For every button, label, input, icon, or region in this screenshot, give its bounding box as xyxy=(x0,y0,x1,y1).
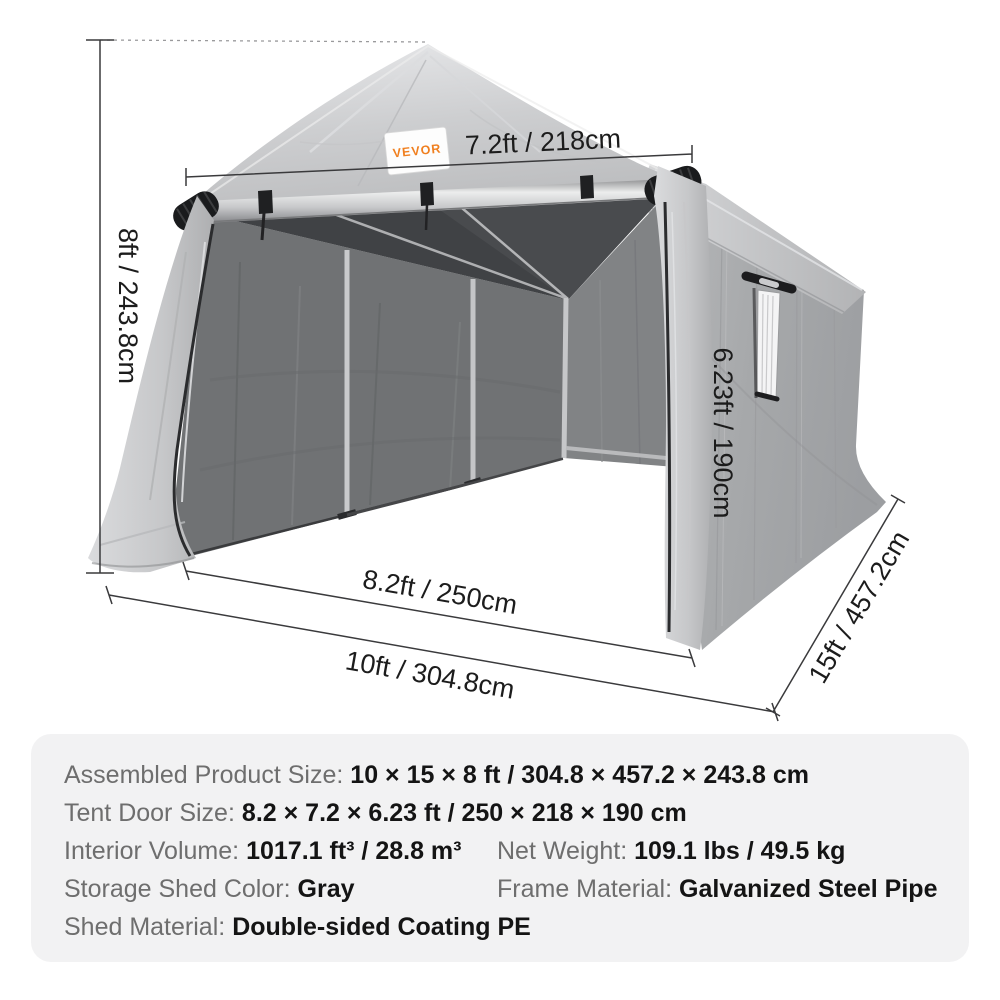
spec-value: 109.1 lbs / 49.5 kg xyxy=(634,837,845,866)
spec-label: Interior Volume: xyxy=(64,837,239,866)
pole-strap xyxy=(580,175,594,199)
spec-label: Frame Material: xyxy=(497,875,672,904)
spec-value: Double-sided Coating PE xyxy=(232,913,531,942)
spec-value: 10 × 15 × 8 ft / 304.8 × 457.2 × 243.8 c… xyxy=(350,761,809,790)
spec-row-volume-weight: Interior Volume: 1017.1 ft³ / 28.8 m³ Ne… xyxy=(64,832,969,870)
product-dimension-image: VEVOR xyxy=(0,0,1000,1000)
spec-value: Gray xyxy=(298,875,355,904)
spec-label: Storage Shed Color: xyxy=(64,875,291,904)
pole-strap xyxy=(258,190,273,214)
spec-panel: Assembled Product Size: 10 × 15 × 8 ft /… xyxy=(31,734,969,962)
corner-pole xyxy=(564,298,566,458)
spec-pair-net-weight: Net Weight: 109.1 lbs / 49.5 kg xyxy=(497,837,845,866)
spec-value: 1017.1 ft³ / 28.8 m³ xyxy=(246,837,461,866)
dim-label-door-height: 6.23ft / 190cm xyxy=(708,347,738,518)
spec-pair-shed-color: Storage Shed Color: Gray xyxy=(64,875,497,904)
spec-value: Galvanized Steel Pipe xyxy=(679,875,937,904)
apex-guide-line xyxy=(100,40,428,42)
spec-label: Net Weight: xyxy=(497,837,627,866)
spec-label: Tent Door Size: xyxy=(64,799,235,828)
spec-label: Assembled Product Size: xyxy=(64,761,343,790)
spec-pair-frame-material: Frame Material: Galvanized Steel Pipe xyxy=(497,875,937,904)
spec-pair-interior-volume: Interior Volume: 1017.1 ft³ / 28.8 m³ xyxy=(64,837,497,866)
spec-row-assembled-size: Assembled Product Size: 10 × 15 × 8 ft /… xyxy=(64,756,969,794)
spec-row-door-size: Tent Door Size: 8.2 × 7.2 × 6.23 ft / 25… xyxy=(64,794,969,832)
spec-row-color-frame: Storage Shed Color: Gray Frame Material:… xyxy=(64,870,969,908)
dim-label-height: 8ft / 243.8cm xyxy=(113,228,143,384)
tent-illustration: VEVOR xyxy=(0,0,1000,737)
dim-door-height: 6.23ft / 190cm xyxy=(708,347,738,518)
spec-row-shed-material: Shed Material: Double-sided Coating PE xyxy=(64,908,969,946)
spec-value: 8.2 × 7.2 × 6.23 ft / 250 × 218 × 190 cm xyxy=(242,799,687,828)
pole-strap xyxy=(420,182,434,206)
spec-label: Shed Material: xyxy=(64,913,225,942)
